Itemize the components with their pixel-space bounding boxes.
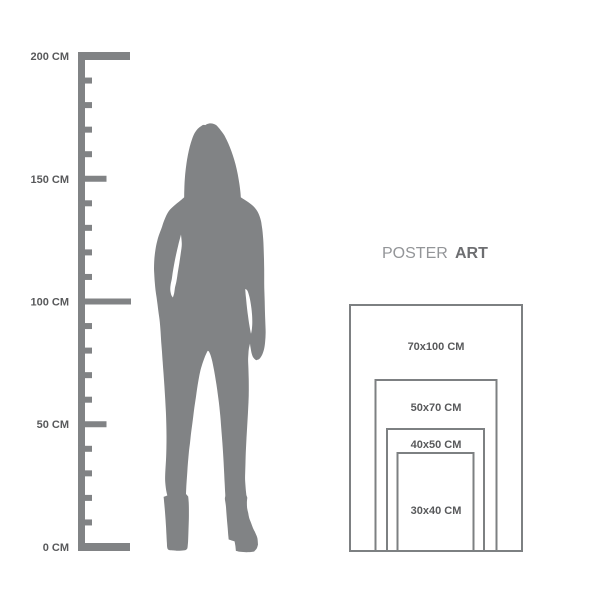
svg-text:40x50 CM: 40x50 CM [411,439,462,451]
svg-text:50 CM: 50 CM [37,419,69,431]
svg-text:ART: ART [455,245,488,262]
svg-text:100 CM: 100 CM [30,297,69,309]
svg-text:0 CM: 0 CM [43,542,69,554]
svg-text:POSTER: POSTER [382,245,448,262]
svg-text:50x70 CM: 50x70 CM [411,402,462,414]
svg-text:70x100 CM: 70x100 CM [408,341,465,353]
svg-text:200 CM: 200 CM [30,51,69,63]
svg-text:150 CM: 150 CM [30,174,69,186]
svg-text:30x40 CM: 30x40 CM [411,505,462,517]
